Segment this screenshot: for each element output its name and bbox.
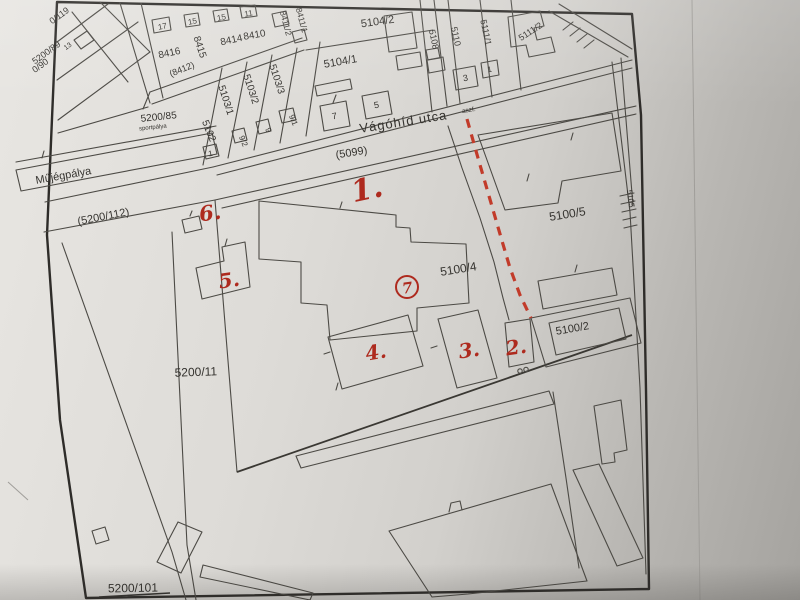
road-lines (44, 3, 646, 574)
parcel-label-5103-1: 5103/1 (215, 84, 235, 117)
parcel-label-5110: 5110 (449, 26, 463, 47)
house-number-3: 3 (462, 73, 469, 84)
road-label-5099: (5099) (335, 145, 368, 162)
red-marker-6: 6. (197, 199, 222, 227)
parcel-label-5200-101: 5200/101 (108, 581, 159, 596)
house-number-13: 13 (63, 42, 74, 52)
house-number-15b: 15 (216, 12, 227, 23)
road-label-5200-112: (5200/112) (77, 206, 131, 228)
parcel-label-5200-85: 5200/85 (140, 110, 178, 125)
map-drawing: 0/119 5200/89 13 0/90 8416 17 8415 15 84… (0, 0, 800, 600)
parcel-label-8414: 8414 (219, 33, 243, 48)
parcel-label-8410: 8410 (243, 28, 267, 43)
red-marker-2: 2. (503, 334, 528, 361)
parcel-label-5111-1: 5111/1 (478, 19, 493, 47)
hatch-marks (42, 22, 637, 390)
parcel-label-5100-4: 5100/4 (439, 259, 478, 279)
red-marker-3: 3. (457, 337, 481, 364)
red-marker-5: 5. (217, 267, 241, 294)
house-number-17: 17 (157, 21, 168, 32)
house-number-7: 7 (331, 111, 338, 122)
parcel-label-5104-1: 5104/1 (323, 53, 358, 71)
road-label-8412: (8412) (168, 60, 196, 79)
parcel-labels: 0/119 5200/89 13 0/90 8416 17 8415 15 84… (30, 5, 636, 595)
parcel-label-8411-2: 8411/2 (278, 10, 294, 37)
building-outlines (16, 5, 643, 600)
house-number-9-2: 9/2 (237, 134, 250, 148)
cadastral-map-scan: 0/119 5200/89 13 0/90 8416 17 8415 15 84… (0, 0, 800, 600)
parcel-label-8411-1: 8411/1 (294, 7, 310, 34)
street-name-suffix: aszf. (461, 106, 476, 115)
house-number-15a: 15 (187, 16, 198, 27)
parcel-label-0-119: 0/119 (47, 5, 71, 26)
parcel-label-5108: 5108 (427, 29, 441, 51)
parcel-label-5200-11: 5200/11 (174, 364, 217, 379)
red-marker-1: 1. (348, 169, 386, 210)
parcel-label-8415: 8415 (191, 35, 208, 60)
house-number-1a: 1 (207, 149, 214, 159)
map-frame (47, 2, 649, 598)
red-dashed-boundary-line (467, 119, 531, 318)
facility-name-mujegpalya: Műjégpálya (35, 165, 93, 187)
red-marker-7: 7 (401, 278, 414, 297)
house-number-5: 5 (373, 100, 380, 111)
house-number-9: 9 (263, 126, 273, 134)
parcel-label-5102: 5102 (199, 119, 218, 144)
parcel-label-5100-2: 5100/2 (555, 320, 590, 338)
parcel-label-5103-3: 5103/3 (266, 63, 286, 96)
paper-edge-shadow (8, 0, 700, 600)
parcel-label-5103-2: 5103/2 (240, 73, 260, 106)
house-number-11: 11 (244, 8, 254, 18)
parcel-label-5105: 5105 (625, 189, 636, 208)
parcel-label-5100-5: 5100/5 (548, 204, 587, 224)
parcel-label-5104-2: 5104/2 (360, 14, 395, 31)
house-number-1b: 1 (487, 65, 493, 75)
street-name-vagohid-utca: Vágóhíd utca (358, 107, 448, 136)
parcel-label-8416: 8416 (157, 46, 181, 61)
red-marker-4: 4. (363, 338, 388, 365)
house-number-9-1: 9/1 (287, 113, 300, 127)
parcel-sublabel-sportpalya: sportpálya (139, 124, 168, 133)
